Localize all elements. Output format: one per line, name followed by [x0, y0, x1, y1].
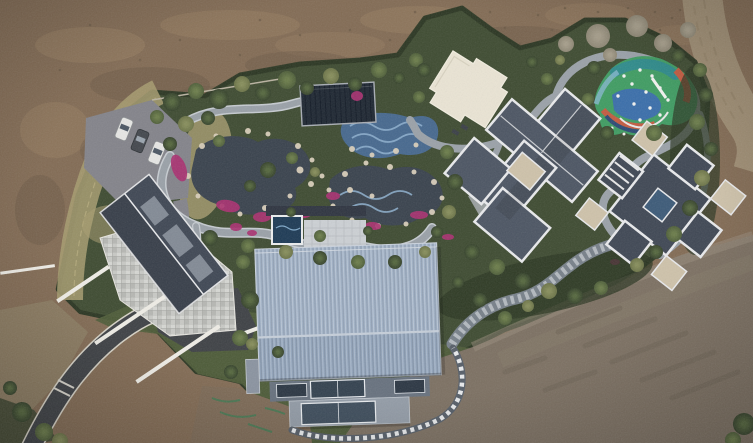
photo-grain — [0, 0, 753, 443]
estate-aerial-scene — [0, 0, 753, 443]
aerial-photo — [0, 0, 753, 443]
